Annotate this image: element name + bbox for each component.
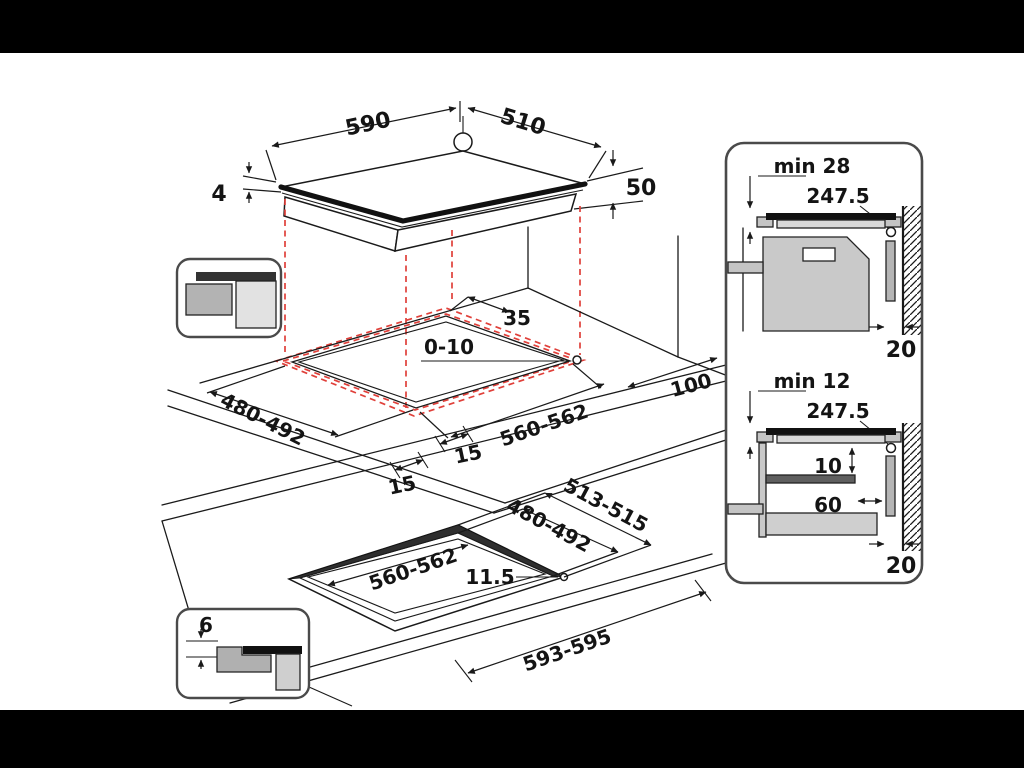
hole-position-circle bbox=[454, 133, 472, 151]
dim-clearance-oven: min 28 bbox=[774, 154, 851, 178]
cabinet-rail bbox=[728, 262, 763, 273]
dim-glass-thickness: 4 bbox=[211, 182, 226, 207]
glass-section-icon bbox=[196, 272, 276, 281]
worktop-section-icon bbox=[236, 281, 276, 328]
junction-box-circle bbox=[887, 228, 896, 237]
rear-spacer-bar bbox=[886, 456, 895, 516]
shelf-board bbox=[766, 475, 855, 483]
installation-diagram: 590 510 10 4 50 bbox=[0, 0, 1024, 768]
side-section-panel: min 28 247.5 20 min 12 bbox=[726, 143, 922, 583]
cabinet-rail bbox=[728, 504, 763, 514]
drawer-front bbox=[766, 513, 877, 535]
rear-spacer-bar bbox=[886, 241, 895, 301]
hob-glass-section bbox=[766, 213, 896, 220]
reference-point-circle bbox=[573, 356, 581, 364]
dim-clearance-shelf: min 12 bbox=[774, 369, 851, 393]
wall-hatching bbox=[904, 423, 921, 551]
standard-install-inset bbox=[177, 259, 281, 337]
oven-vent bbox=[803, 248, 835, 261]
junction-box-circle bbox=[887, 444, 896, 453]
glass-section bbox=[243, 646, 302, 654]
dim-side-clearance: 0-10 bbox=[424, 335, 474, 359]
screen: 590 510 10 4 50 bbox=[0, 0, 1024, 768]
cabinet-section-icon bbox=[186, 284, 232, 315]
wall-hatching bbox=[904, 206, 921, 335]
hob-body-section bbox=[777, 435, 885, 443]
dim-rear-gap-top: 20 bbox=[886, 338, 917, 363]
dim-body-height: 50 bbox=[626, 176, 657, 201]
hob-body-section bbox=[777, 220, 885, 228]
dim-rear-gap-bottom: 20 bbox=[886, 554, 917, 579]
worktop-edge-section bbox=[276, 654, 300, 690]
dim-junction-box-top: 247.5 bbox=[806, 184, 869, 208]
hob-glass-section bbox=[766, 428, 896, 435]
dim-junction-box-bottom: 247.5 bbox=[806, 399, 869, 423]
dim-corner-radius: 11.5 bbox=[465, 565, 514, 589]
dim-rear-clearance: 35 bbox=[503, 306, 531, 330]
cabinet-side-panel bbox=[759, 443, 766, 537]
